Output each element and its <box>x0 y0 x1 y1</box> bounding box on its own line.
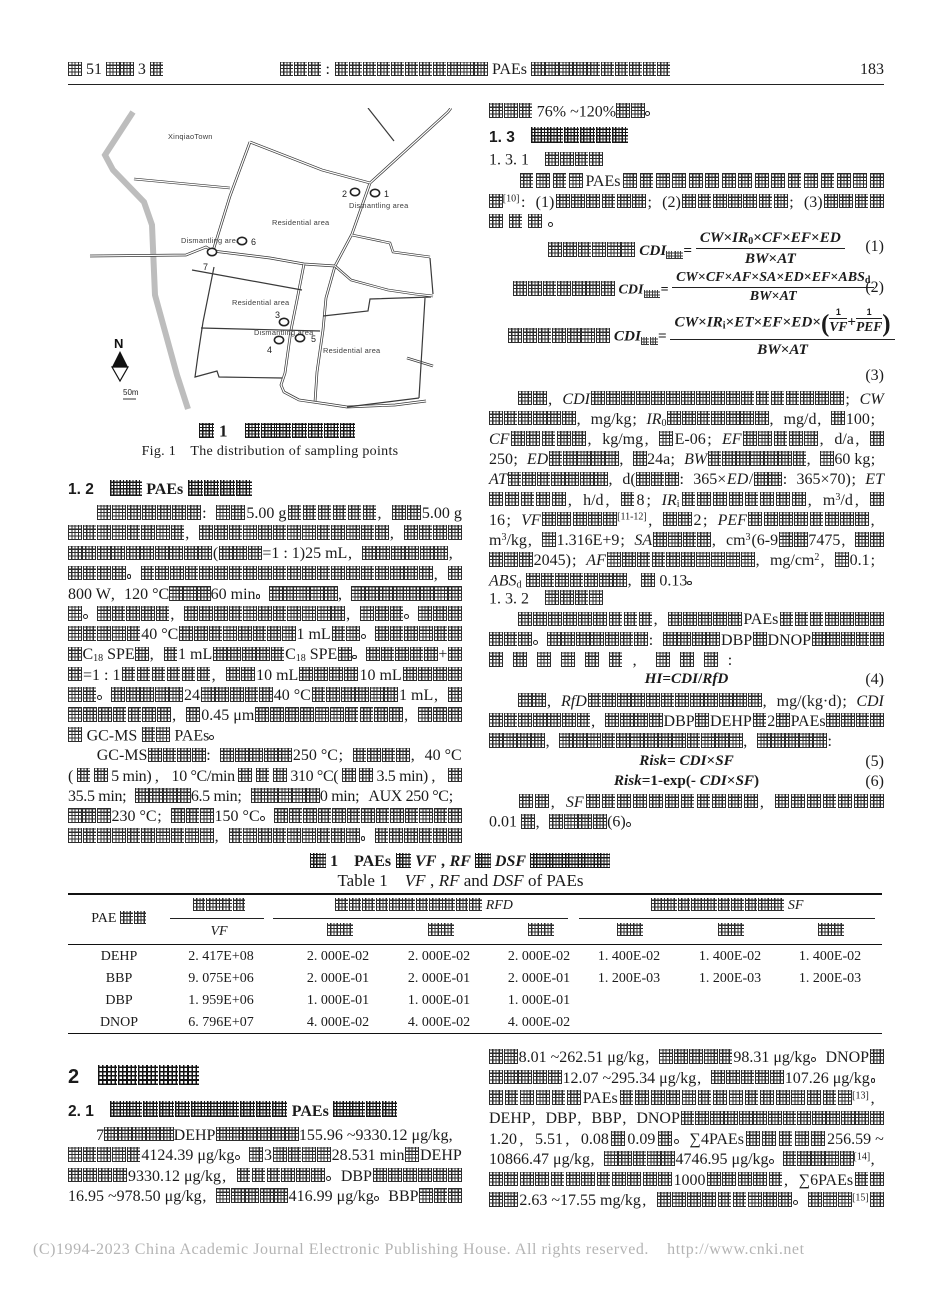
svg-text:Residential area: Residential area <box>272 218 330 227</box>
svg-text:2: 2 <box>342 189 347 199</box>
svg-text:1: 1 <box>384 189 389 199</box>
svg-text:Dismantling area: Dismantling area <box>254 328 314 337</box>
svg-text:N: N <box>114 336 123 351</box>
svg-text:Residential area: Residential area <box>323 346 381 355</box>
svg-text:7: 7 <box>203 262 208 272</box>
svg-text:Residential area: Residential area <box>232 298 290 307</box>
svg-text:Dismantling area: Dismantling area <box>349 201 409 210</box>
svg-text:3: 3 <box>275 310 280 320</box>
svg-text:XinqiaoTown: XinqiaoTown <box>168 132 213 141</box>
svg-text:5: 5 <box>311 334 316 344</box>
svg-text:4: 4 <box>267 345 272 355</box>
svg-text:50m: 50m <box>123 388 139 397</box>
